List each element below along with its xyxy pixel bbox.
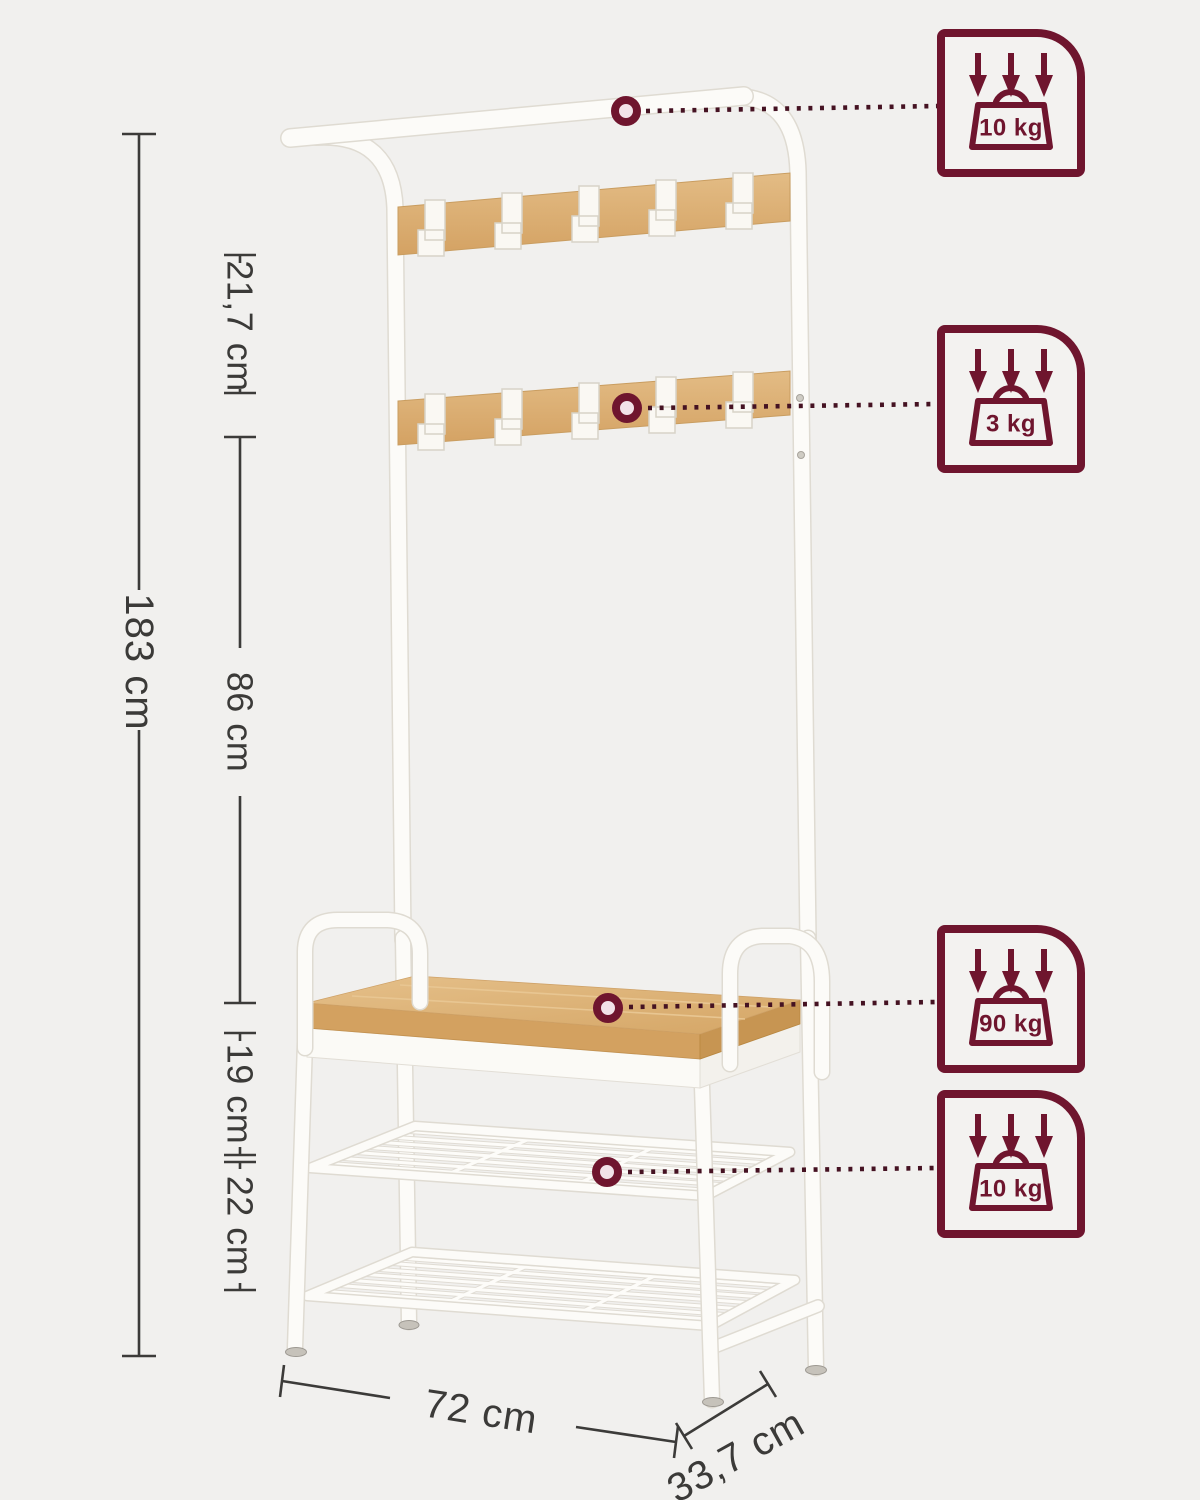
anchor-marker-bench <box>597 997 619 1019</box>
load-badge-top-shelf: 10 kg <box>937 29 1085 177</box>
dim-hook-to-bench-label: 86 cm <box>220 672 261 773</box>
weight-icon: 10 kg <box>972 92 1050 147</box>
load-capacity-label: 3 kg <box>986 411 1036 438</box>
top-shelf-rail <box>290 96 744 138</box>
weight-icon: 90 kg <box>972 988 1050 1043</box>
load-badge-hook-rail: 3 kg <box>937 325 1085 473</box>
dim-depth-label: 33,7 cm <box>660 1401 812 1500</box>
dim-line-total-height <box>122 134 156 1356</box>
diagram-scene: 183 cm 21,7 cm 86 cm 19 cm 22 cm 72 cm 3… <box>0 0 1200 1500</box>
load-badge-bench: 90 kg <box>937 925 1085 1073</box>
dim-shelf-gap-label: 22 cm <box>220 1176 261 1277</box>
front-legs <box>295 1042 712 1400</box>
load-badge-mesh-shelf: 10 kg <box>937 1090 1085 1238</box>
mesh-shelf-lower <box>307 1252 795 1326</box>
dim-bench-to-shelf-label: 19 cm <box>220 1044 261 1145</box>
anchor-marker-hook-rail <box>616 397 638 419</box>
anchor-marker-top-shelf <box>615 100 637 122</box>
screw <box>797 395 804 402</box>
load-capacity-label: 10 kg <box>979 115 1043 142</box>
dim-top-hook-gap-label: 21,7 cm <box>220 260 261 392</box>
screw <box>798 452 805 459</box>
product-dimension-diagram: 183 cm 21,7 cm 86 cm 19 cm 22 cm 72 cm 3… <box>0 0 1200 1500</box>
anchor-marker-mesh-shelf <box>596 1161 618 1183</box>
mesh-shelf-upper <box>310 1126 790 1196</box>
dim-total-height-label: 183 cm <box>117 593 161 730</box>
weight-icon: 3 kg <box>972 388 1050 443</box>
coat-rack-frame <box>286 96 827 1407</box>
weight-icon: 10 kg <box>972 1153 1050 1208</box>
dim-width-label: 72 cm <box>421 1382 540 1443</box>
load-capacity-label: 10 kg <box>979 1176 1043 1203</box>
load-capacity-label: 90 kg <box>979 1011 1043 1038</box>
